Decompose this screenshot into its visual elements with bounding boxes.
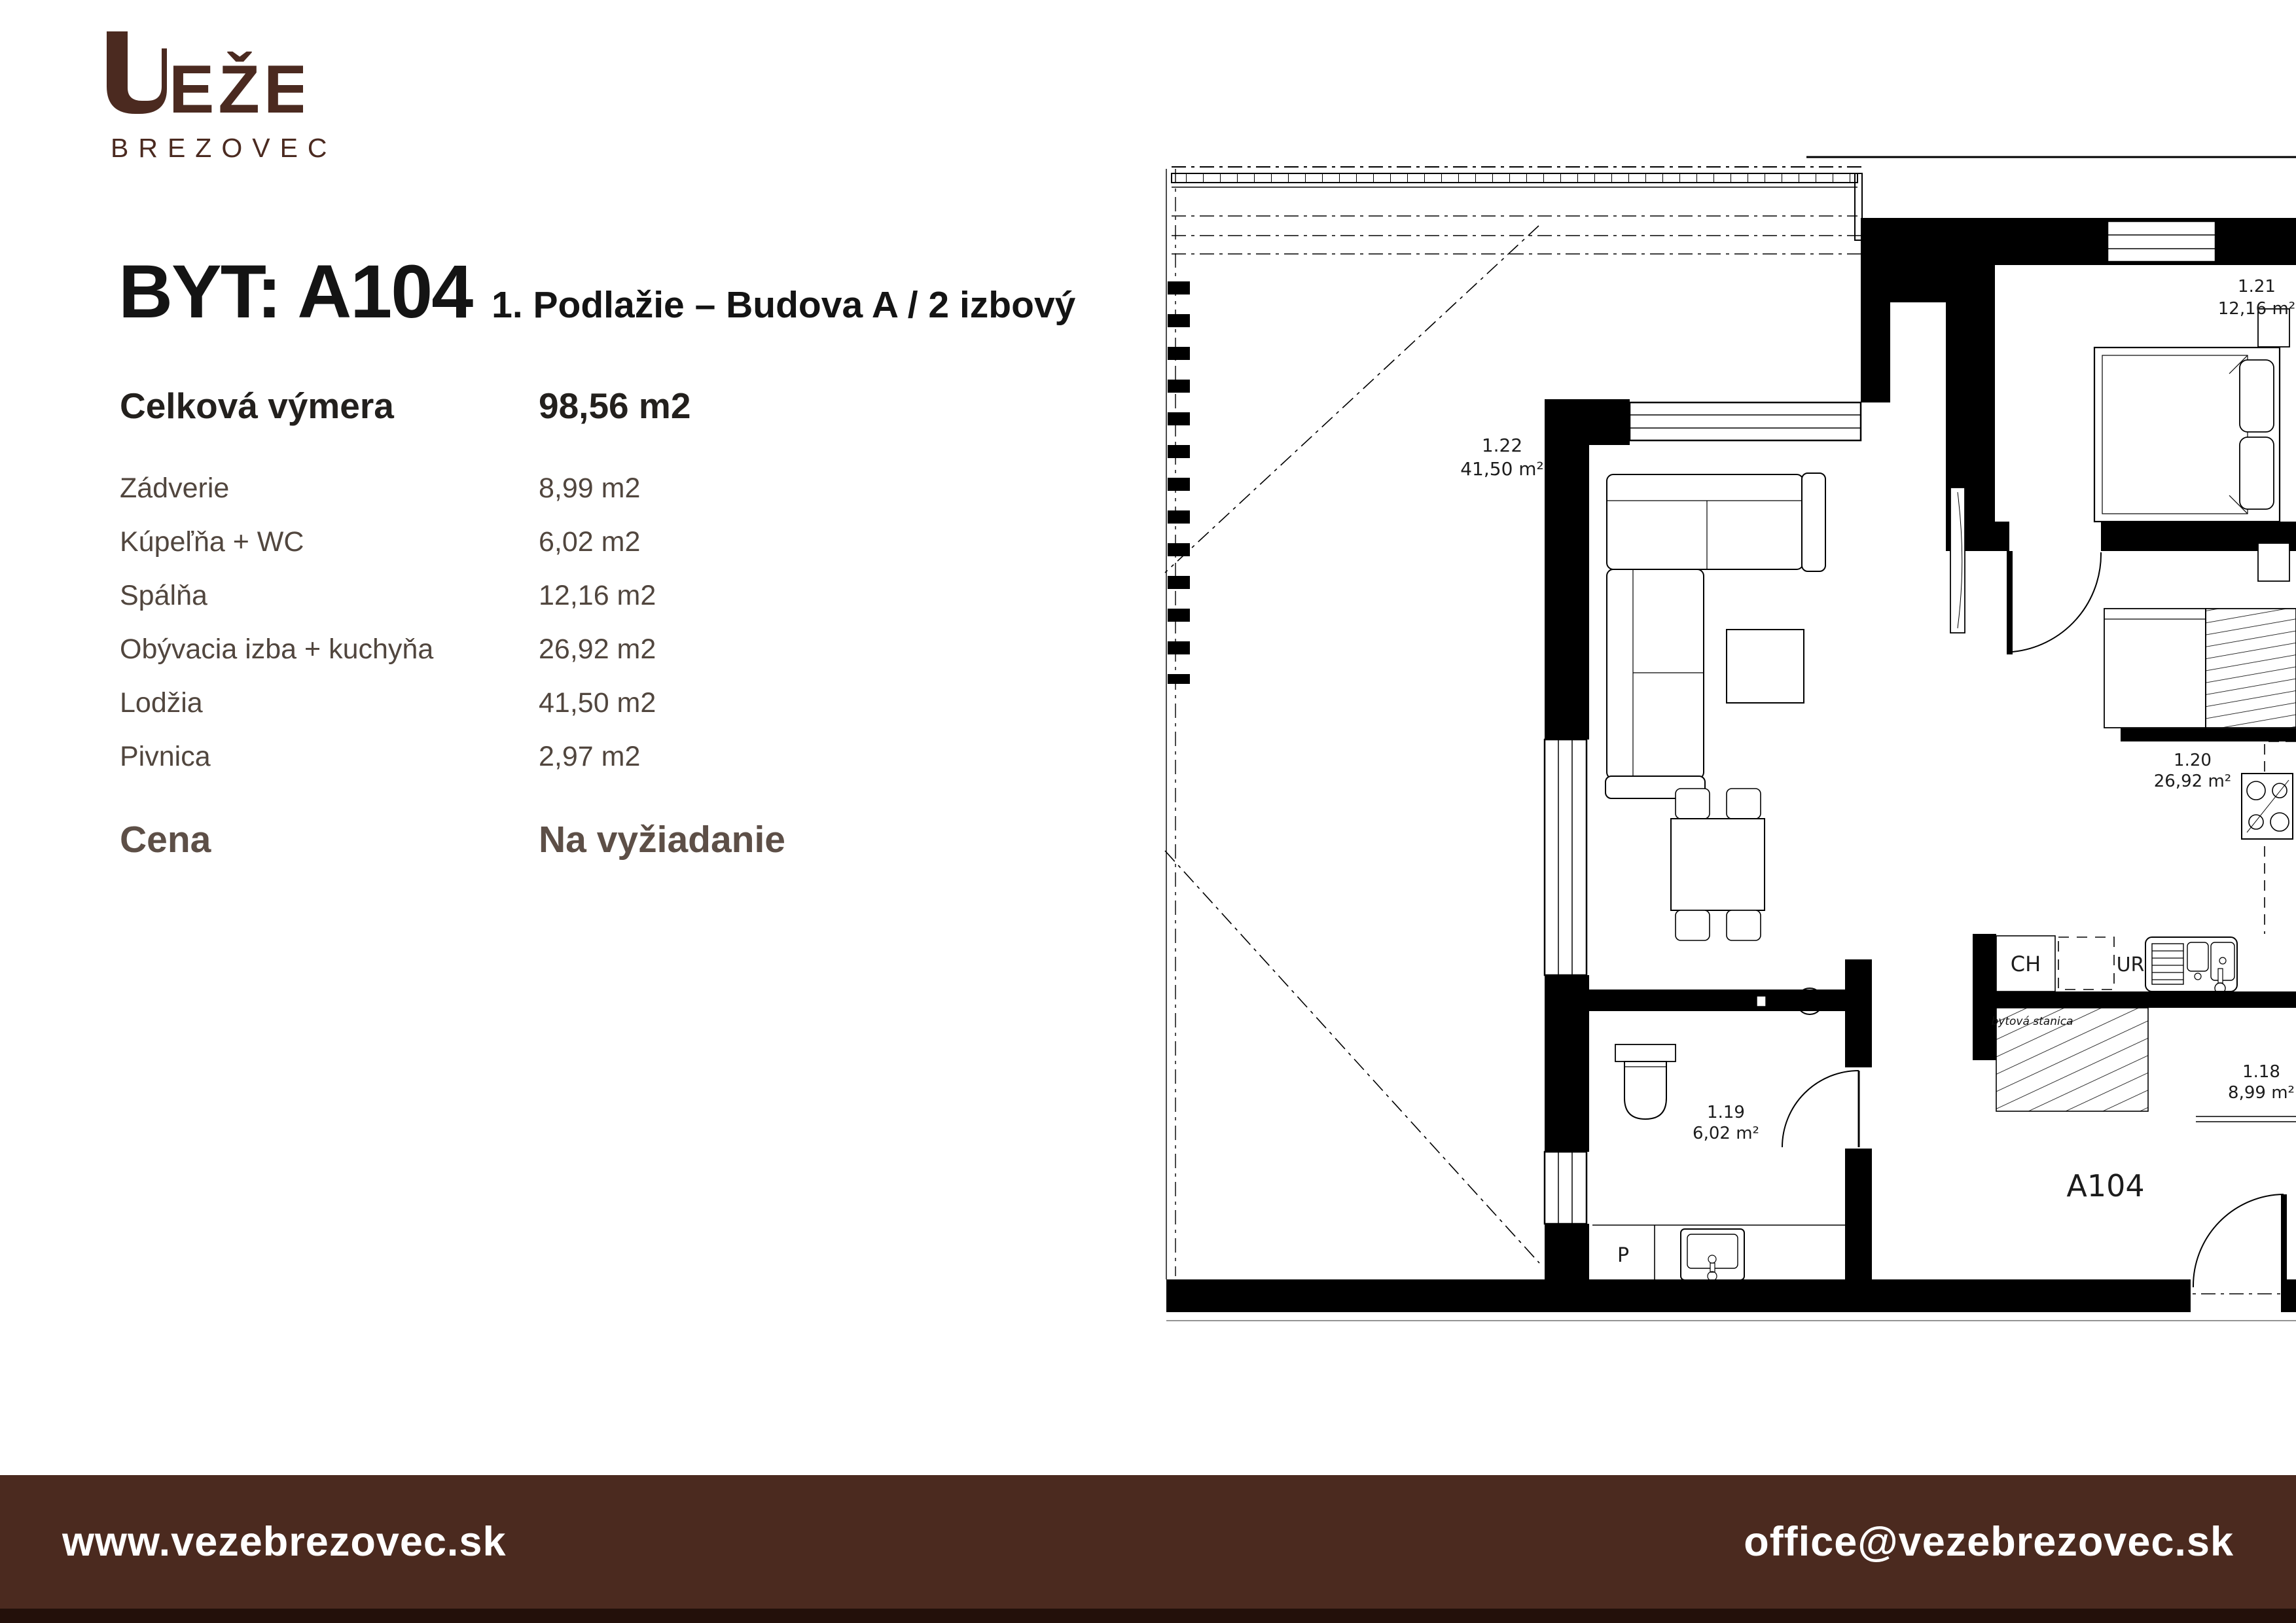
sofa-armrest — [1802, 473, 1825, 571]
bottom-wall — [1166, 1279, 2191, 1312]
room-label: Pivnica — [120, 741, 211, 772]
flyer-page: { "logo": { "name": "VEŽE", "subtitle": … — [0, 0, 2296, 1623]
room-row: Zádverie 8,99 m2 — [120, 473, 1069, 526]
bathroom-door — [1782, 1071, 1859, 1147]
room-id-bedroom: 1.21 — [2238, 277, 2276, 296]
brand-logo: EŽE BREZOVEC — [107, 31, 337, 164]
page-title-block: BYT: A1041. Podlažie – Budova A / 2 izbo… — [118, 249, 1075, 335]
pillow — [2240, 360, 2274, 432]
bathroom-window — [1545, 1152, 1587, 1224]
bathroom-right-wall — [1845, 1149, 1872, 1279]
room-value: 26,92 m2 — [539, 633, 656, 666]
total-area-label: Celková výmera — [120, 385, 394, 426]
terrace-railing — [1172, 173, 1857, 183]
living-side-window — [1545, 740, 1587, 975]
room-row: Spálňa 12,16 m2 — [120, 580, 1069, 633]
hall-top-wall — [1973, 991, 2296, 1008]
dining-table — [1671, 819, 1765, 910]
room-value: 8,99 m2 — [539, 473, 640, 505]
bed-mattress — [2102, 355, 2248, 514]
pillow — [2240, 437, 2274, 509]
room-row: Lodžia 41,50 m2 — [120, 687, 1069, 741]
coffee-table — [1727, 630, 1804, 703]
sofa-left — [1607, 569, 1704, 779]
apartment-title: BYT: A104 — [118, 250, 472, 334]
apartment-subtitle: 1. Podlažie – Budova A / 2 izbový — [492, 284, 1075, 326]
room-label: Lodžia — [120, 687, 203, 719]
left-wall — [1545, 445, 1589, 740]
room-area-bathroom: 6,02 m² — [1693, 1124, 1759, 1143]
room-row: Obývacia izba + kuchyňa 26,92 m2 — [120, 633, 1069, 687]
logo-v-glyph — [107, 31, 167, 114]
room-area-bedroom: 12,16 m² — [2218, 299, 2295, 319]
toilet-cistern — [1615, 1044, 1676, 1061]
brand-logo-mark: EŽE — [107, 31, 303, 119]
website-link[interactable]: www.vezebrezovec.sk — [62, 1518, 507, 1565]
total-area-value: 98,56 m2 — [539, 385, 691, 427]
dining-chair — [1727, 789, 1761, 819]
kitchen — [1996, 741, 2296, 993]
bedroom-furniture — [2094, 309, 2296, 728]
living-corner-wall — [1545, 399, 1630, 445]
dining-chair — [1727, 910, 1761, 940]
radiator — [1950, 488, 1965, 633]
slope-line — [1165, 226, 1539, 573]
living-furniture — [1605, 473, 1965, 940]
bedroom-top-wall — [1861, 218, 2296, 265]
kitchen-top-wall — [2121, 728, 2296, 741]
washbasin — [1681, 1229, 1744, 1281]
price-row: Cena Na vyžiadanie — [120, 818, 1069, 873]
room-row: Kúpeľňa + WC 6,02 m2 — [120, 526, 1069, 580]
room-list: Zádverie 8,99 m2 Kúpeľňa + WC 6,02 m2 Sp… — [120, 473, 1069, 794]
price-label: Cena — [120, 819, 211, 861]
sofa-top — [1607, 474, 1803, 569]
unit-number-label: A104 — [2066, 1168, 2144, 1204]
dining-chair — [1676, 910, 1710, 940]
room-value: 41,50 m2 — [539, 687, 656, 719]
floor-plan: 1.22 41,50 m² 1.21 12,16 m² 1.20 26,92 m… — [1152, 151, 2296, 1329]
room-id-hall: 1.18 — [2242, 1062, 2280, 1082]
sink-basin — [2187, 942, 2208, 971]
email-link[interactable]: office@vezebrezovec.sk — [1744, 1518, 2234, 1565]
appliance-dashed — [2058, 937, 2114, 990]
loggia-right-wall — [1861, 302, 1890, 402]
room-label: Zádverie — [120, 473, 229, 504]
bedroom-door — [2007, 551, 2101, 654]
room-row: Pivnica 2,97 m2 — [120, 741, 1069, 794]
corner-wall — [1861, 265, 1946, 302]
terrace-dashed-wall — [1168, 265, 1190, 684]
label-ur: UR — [2117, 954, 2145, 976]
living-top-window — [1630, 402, 1861, 440]
room-id-bathroom: 1.19 — [1707, 1103, 1745, 1122]
footer-bar: www.vezebrezovec.sk office@vezebrezovec.… — [0, 1475, 2296, 1623]
left-wall — [1545, 975, 1589, 1152]
room-area-loggia: 41,50 m² — [1460, 458, 1544, 480]
total-area-row: Celková výmera 98,56 m2 — [120, 385, 1069, 440]
room-area-hall: 8,99 m² — [2228, 1083, 2295, 1103]
wardrobe-hanging — [2206, 609, 2296, 728]
bedroom-window — [2108, 221, 2215, 262]
faucet — [2218, 969, 2223, 983]
label-ch: CH — [2011, 952, 2041, 976]
logo-word: EŽE — [169, 52, 303, 119]
wardrobe — [2104, 609, 2206, 728]
entrance-door — [2173, 1194, 2296, 1301]
room-id-loggia: 1.22 — [1482, 435, 1522, 456]
toilet — [1624, 1061, 1666, 1119]
bathroom-right-wall — [1845, 959, 1872, 1067]
label-p: P — [1617, 1244, 1629, 1267]
bathroom-top-wall — [1589, 990, 1845, 1011]
room-value: 6,02 m2 — [539, 526, 640, 558]
price-value: Na vyžiadanie — [539, 818, 785, 861]
footer-accent-strip — [0, 1609, 2296, 1623]
room-label: Obývacia izba + kuchyňa — [120, 633, 433, 665]
room-label: Kúpeľňa + WC — [120, 526, 304, 558]
nightstand — [2258, 543, 2289, 581]
room-value: 12,16 m2 — [539, 580, 656, 612]
shower-head — [1757, 996, 1766, 1007]
room-id-living: 1.20 — [2174, 751, 2212, 770]
room-label: Spálňa — [120, 580, 207, 611]
room-value: 2,97 m2 — [539, 741, 640, 773]
sink-unit — [2145, 937, 2237, 993]
room-area-living: 26,92 m² — [2154, 772, 2231, 791]
label-tech-room: bytová stanica — [1991, 1015, 2073, 1028]
dining-chair — [1676, 789, 1710, 819]
logo-subtitle: BREZOVEC — [107, 133, 337, 164]
slope-line — [1165, 851, 1539, 1263]
